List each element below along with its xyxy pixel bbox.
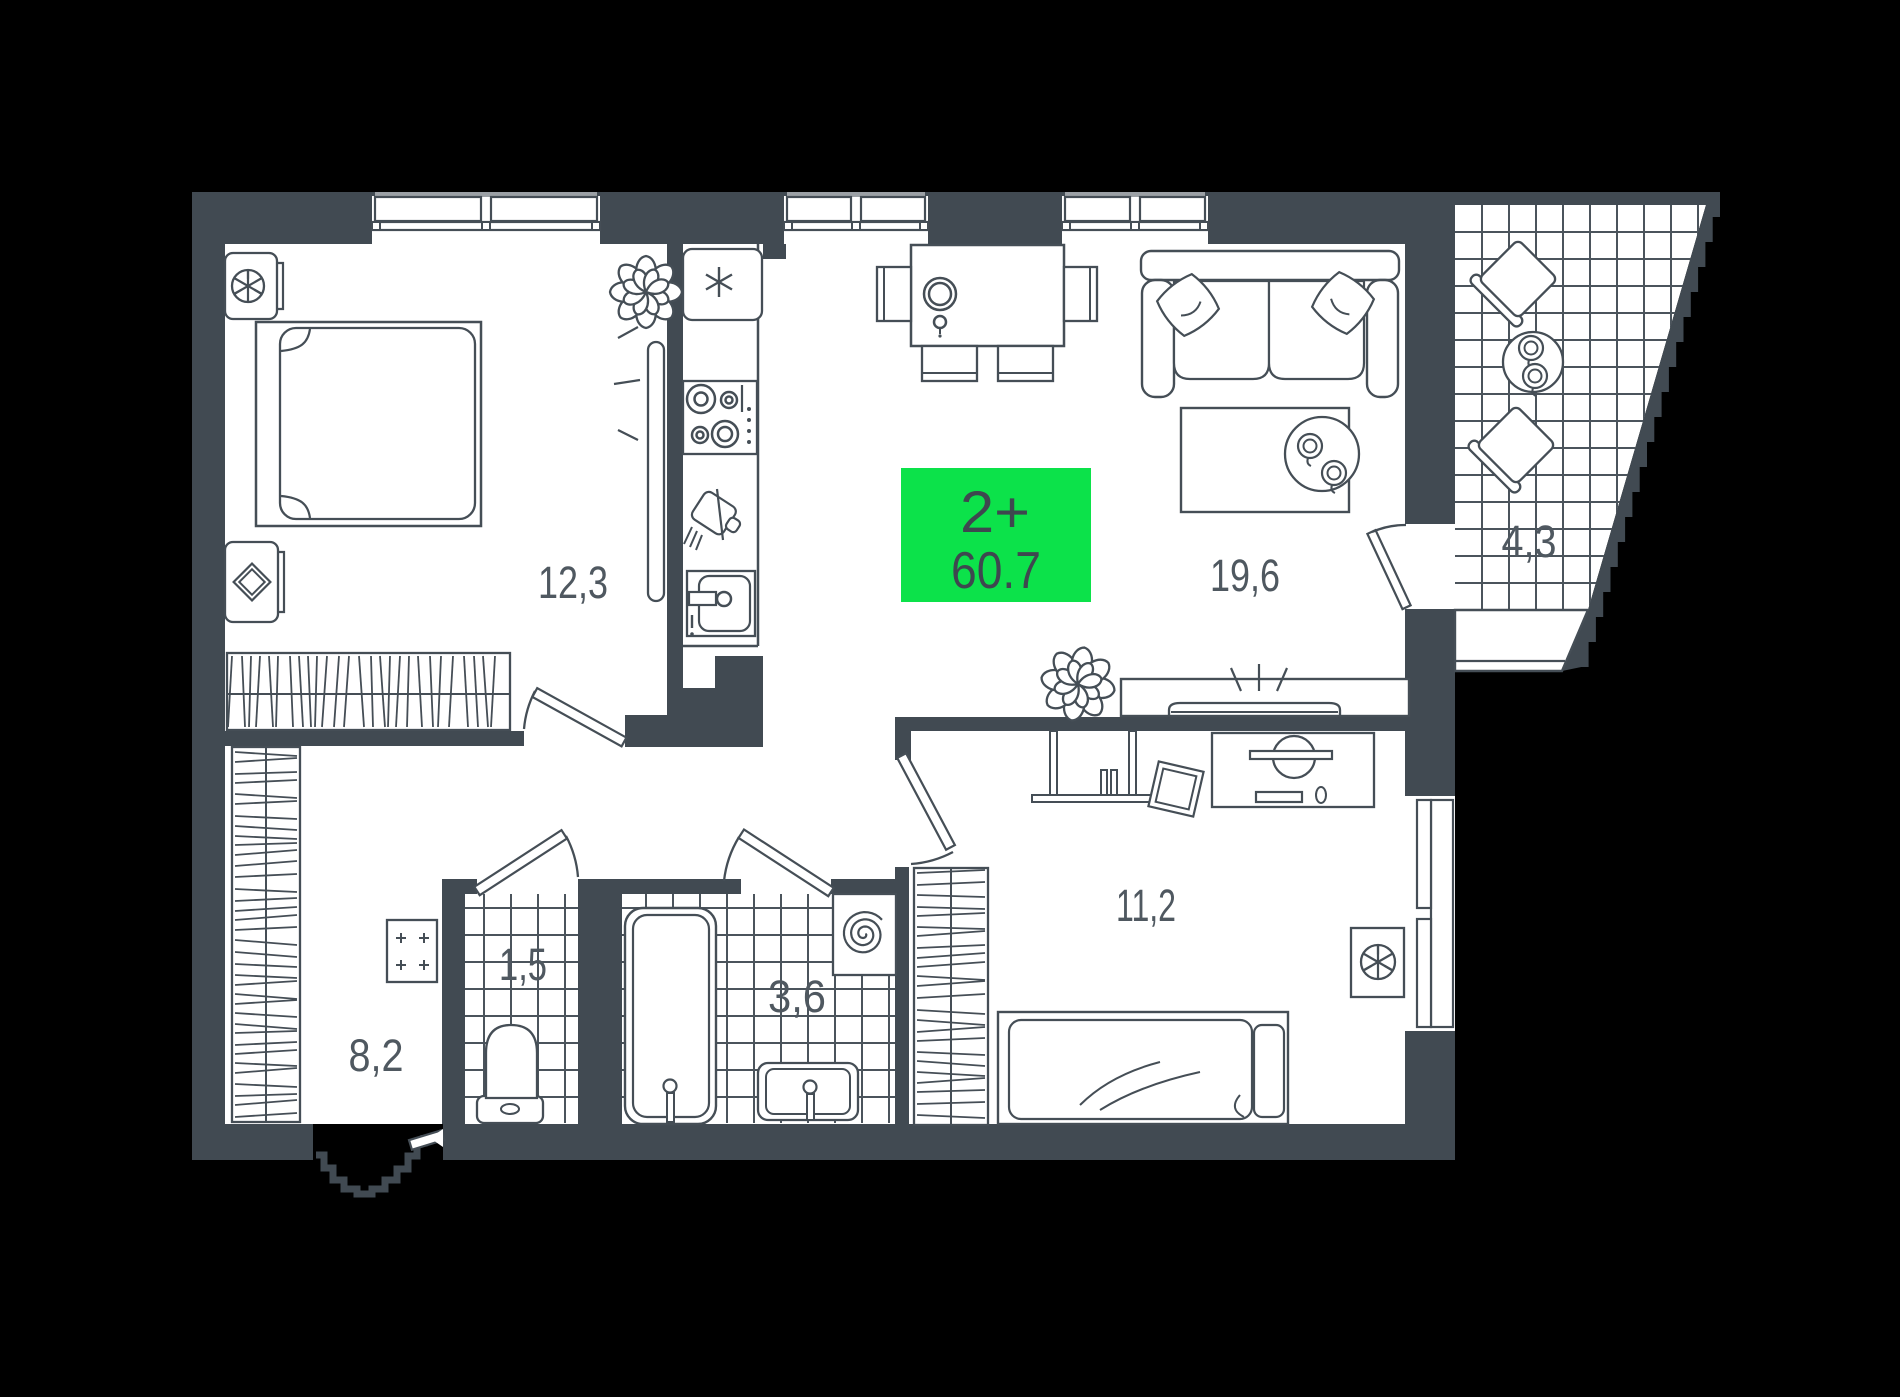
svg-text:19,6: 19,6	[1210, 550, 1280, 601]
svg-text:1,5: 1,5	[499, 939, 547, 990]
svg-text:11,2: 11,2	[1116, 880, 1176, 931]
svg-text:4,3: 4,3	[1502, 516, 1557, 567]
svg-text:2+: 2+	[960, 480, 1030, 545]
svg-text:3,6: 3,6	[768, 971, 826, 1022]
svg-text:12,3: 12,3	[538, 557, 608, 608]
svg-text:60.7: 60.7	[951, 542, 1041, 600]
svg-text:8,2: 8,2	[349, 1030, 404, 1081]
